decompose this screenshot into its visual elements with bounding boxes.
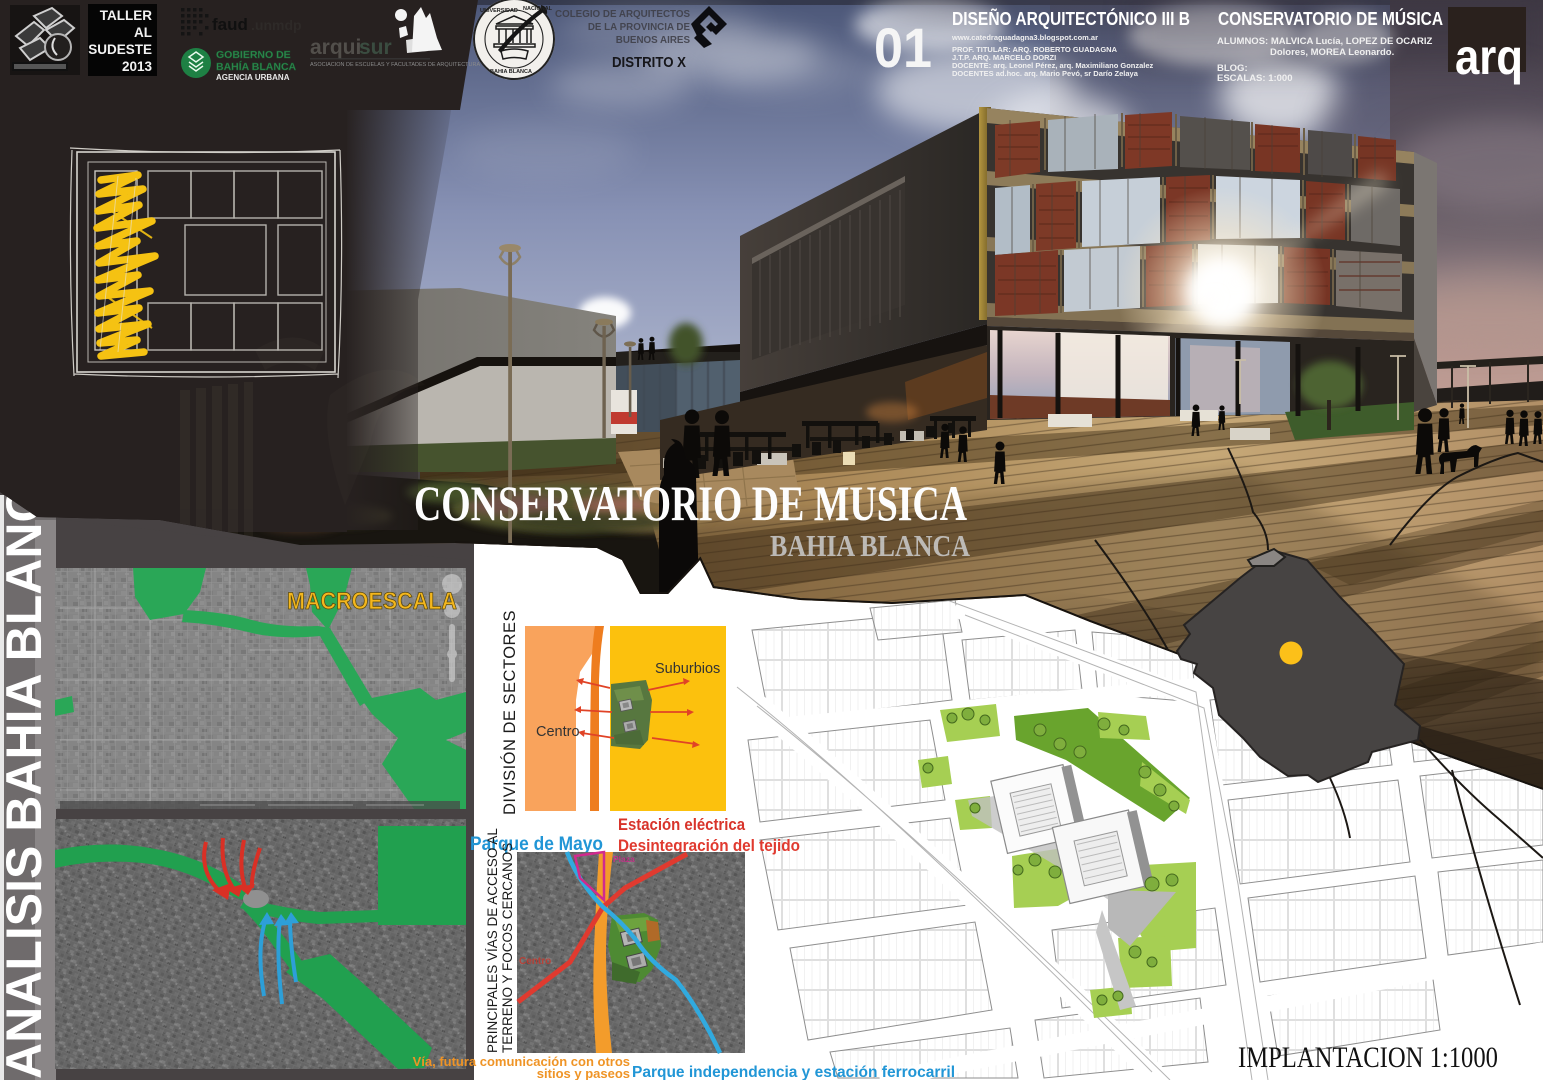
svg-text:Dolores, MOREA Leonardo.: Dolores, MOREA Leonardo. (1270, 47, 1394, 58)
svg-text:CONSERVATORIO DE MUSICA: CONSERVATORIO DE MUSICA (414, 475, 967, 531)
svg-text:01: 01 (874, 16, 932, 79)
svg-text:Centro: Centro (519, 956, 551, 967)
svg-text:MACROESCALA: MACROESCALA (287, 588, 457, 615)
svg-text:UNIVERSIDAD: UNIVERSIDAD (480, 8, 518, 14)
svg-text:PRINCIPALES VÍAS DE ACCESO AL: PRINCIPALES VÍAS DE ACCESO AL (485, 828, 500, 1053)
svg-text:DIVISIÓN DE SECTORES: DIVISIÓN DE SECTORES (500, 610, 519, 815)
svg-text:GOBIERNO DE: GOBIERNO DE (216, 49, 291, 61)
svg-text:ALUMNOS: MALVICA Lucía, LOPEZ: ALUMNOS: MALVICA Lucía, LOPEZ DE OCARIZ (1217, 36, 1433, 47)
svg-text:arq: arq (1455, 29, 1523, 85)
svg-text:2013: 2013 (122, 59, 153, 74)
svg-text:ESCALAS: 1:000: ESCALAS: 1:000 (1217, 73, 1293, 84)
svg-text:DISEÑO ARQUITECTÓNICO III B: DISEÑO ARQUITECTÓNICO III B (952, 8, 1190, 29)
svg-text:.unmdp: .unmdp (251, 17, 302, 33)
svg-text:TALLER: TALLER (100, 8, 152, 23)
svg-text:sitios y paseos: sitios y paseos (537, 1066, 630, 1080)
svg-text:Plaza: Plaza (613, 854, 635, 864)
svg-text:BAHÍA BLANCA: BAHÍA BLANCA (216, 60, 297, 73)
svg-text:SUDESTE: SUDESTE (88, 42, 152, 57)
svg-text:Centro: Centro (536, 724, 580, 740)
svg-text:COLEGIO DE ARQUITECTOS: COLEGIO DE ARQUITECTOS (555, 9, 690, 20)
svg-text:arqui: arqui (310, 36, 361, 59)
svg-text:AGENCIA URBANA: AGENCIA URBANA (216, 73, 290, 82)
svg-text:DISTRITO X: DISTRITO X (612, 55, 686, 71)
svg-text:BAHIA BLANCA: BAHIA BLANCA (490, 69, 532, 75)
svg-text:TERRENO Y FOCOS CERCANOS: TERRENO Y FOCOS CERCANOS (500, 843, 515, 1053)
svg-text:ASOCIACION DE ESCUELAS Y FACUL: ASOCIACION DE ESCUELAS Y FACULTADES DE A… (310, 62, 480, 68)
svg-text:DE LA PROVINCIA DE: DE LA PROVINCIA DE (588, 22, 691, 33)
svg-text:Parque independencia y estació: Parque independencia y estación ferrocar… (632, 1064, 955, 1080)
svg-text:CONSERVATORIO DE MÚSICA: CONSERVATORIO DE MÚSICA (1218, 8, 1443, 29)
svg-text:BUENOS AIRES: BUENOS AIRES (616, 35, 691, 46)
svg-text:sur: sur (359, 36, 392, 59)
svg-text:BAHIA BLANCA: BAHIA BLANCA (770, 528, 971, 563)
svg-text:Suburbios: Suburbios (655, 661, 720, 677)
svg-text:AL: AL (134, 25, 152, 40)
svg-text:ANALISIS BAHIA BLANCA: ANALISIS BAHIA BLANCA (0, 450, 52, 1079)
svg-text:DOCENTES ad.hoc. arq. Mario Pe: DOCENTES ad.hoc. arq. Mario Pevó, sr Dar… (952, 69, 1139, 78)
svg-text:IMPLANTACION 1:1000: IMPLANTACION 1:1000 (1238, 1041, 1498, 1074)
svg-text:faud: faud (212, 15, 248, 34)
svg-text:NACIONAL: NACIONAL (523, 6, 553, 12)
svg-text:Estación eléctrica: Estación eléctrica (618, 815, 745, 834)
svg-text:www.catedraguadagna3.blogspot.: www.catedraguadagna3.blogspot.com.ar (951, 33, 1098, 42)
